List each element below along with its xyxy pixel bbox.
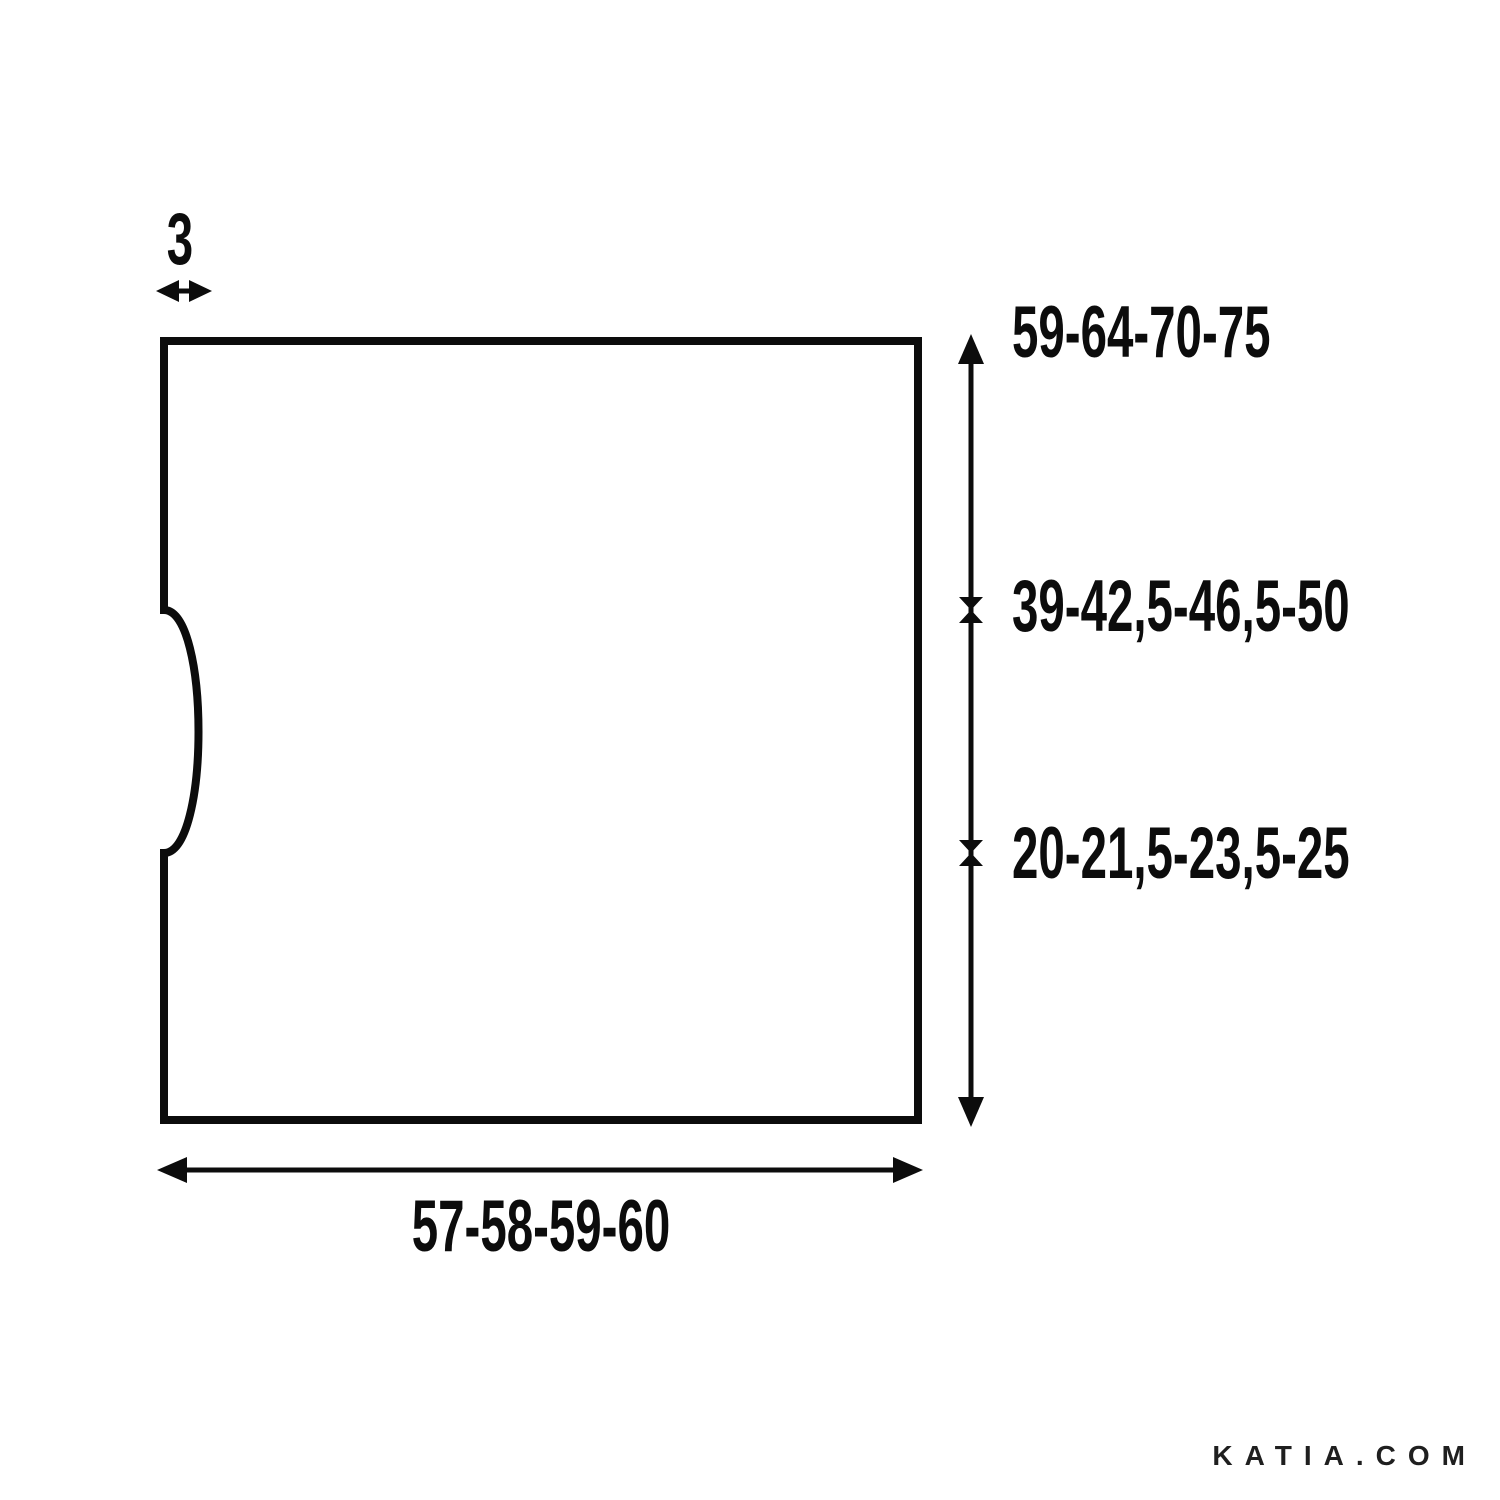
width-measure-arrow-icon: [157, 1157, 923, 1183]
upper-height-value: 39-42,5-46,5-50: [1012, 570, 1500, 643]
tick-lower-top: [959, 840, 983, 853]
width-arrowhead-left: [157, 1157, 187, 1183]
knitting-pattern-schematic: 3 59-64-70-75 39-42,5-46,5-50 20-21,5-23…: [0, 0, 1500, 1500]
schematic-canvas: [0, 0, 1500, 1500]
neck-depth-value: 3: [160, 203, 201, 276]
katia-watermark: KATIA.COM: [1212, 1442, 1477, 1470]
garment-outline: [164, 341, 918, 1120]
neck-width-arrow-icon: [156, 280, 212, 302]
neck-width-arrowhead-right: [189, 280, 212, 302]
width-arrowhead-right: [893, 1157, 923, 1183]
bottom-width-value: 57-58-59-60: [342, 1190, 740, 1263]
tick-upper-bottom: [959, 610, 983, 623]
height-tick-lower-icon: [959, 840, 983, 866]
height-measure-arrow-icon: [958, 334, 984, 1127]
neck-width-arrowhead-left: [156, 280, 179, 302]
tick-upper-top: [959, 597, 983, 610]
height-tick-upper-icon: [959, 597, 983, 623]
total-height-value: 59-64-70-75: [1012, 296, 1410, 369]
height-arrowhead-up: [958, 334, 984, 364]
height-arrowhead-down: [958, 1097, 984, 1127]
lower-height-value: 20-21,5-23,5-25: [1012, 817, 1500, 890]
tick-lower-bottom: [959, 853, 983, 866]
